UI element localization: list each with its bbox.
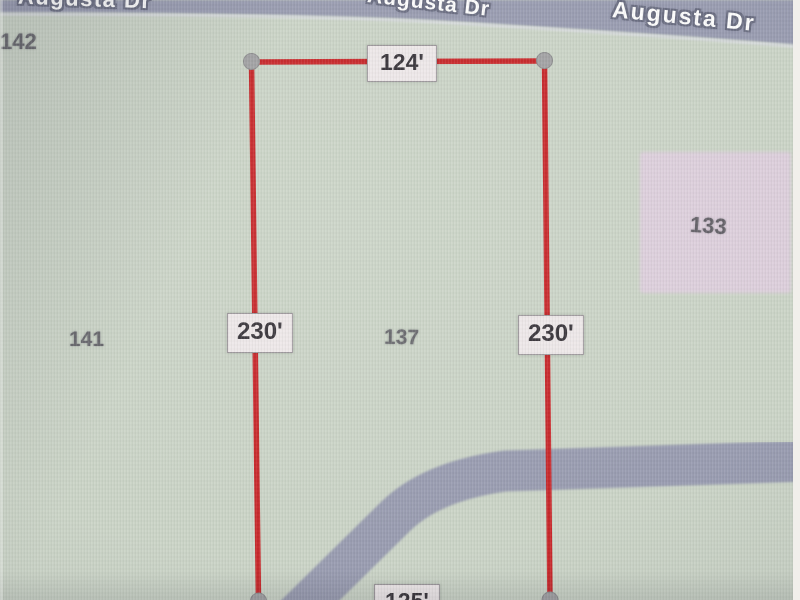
parcel-number-133: 133 (689, 212, 727, 240)
map-canvas[interactable]: Augusta Dr Augusta Dr Augusta Dr 142 141… (0, 0, 800, 600)
map-layer (0, 0, 800, 600)
parcel-number-137: 137 (384, 326, 419, 351)
dimension-label-left: 230' (227, 313, 293, 353)
vertex-handle-top-left[interactable] (244, 54, 260, 70)
dimension-label-top: 124' (367, 45, 437, 82)
dimension-label-bottom: 125' (374, 584, 440, 600)
parcel-number-141: 141 (69, 328, 104, 352)
dimension-label-right: 230' (518, 315, 584, 355)
vertex-handle-top-right[interactable] (537, 53, 553, 69)
road-lower (262, 461, 800, 600)
parcel-number-142: 142 (0, 29, 37, 55)
vertex-handle-bottom-right[interactable] (542, 592, 558, 600)
vertex-handle-bottom-left[interactable] (251, 593, 267, 600)
